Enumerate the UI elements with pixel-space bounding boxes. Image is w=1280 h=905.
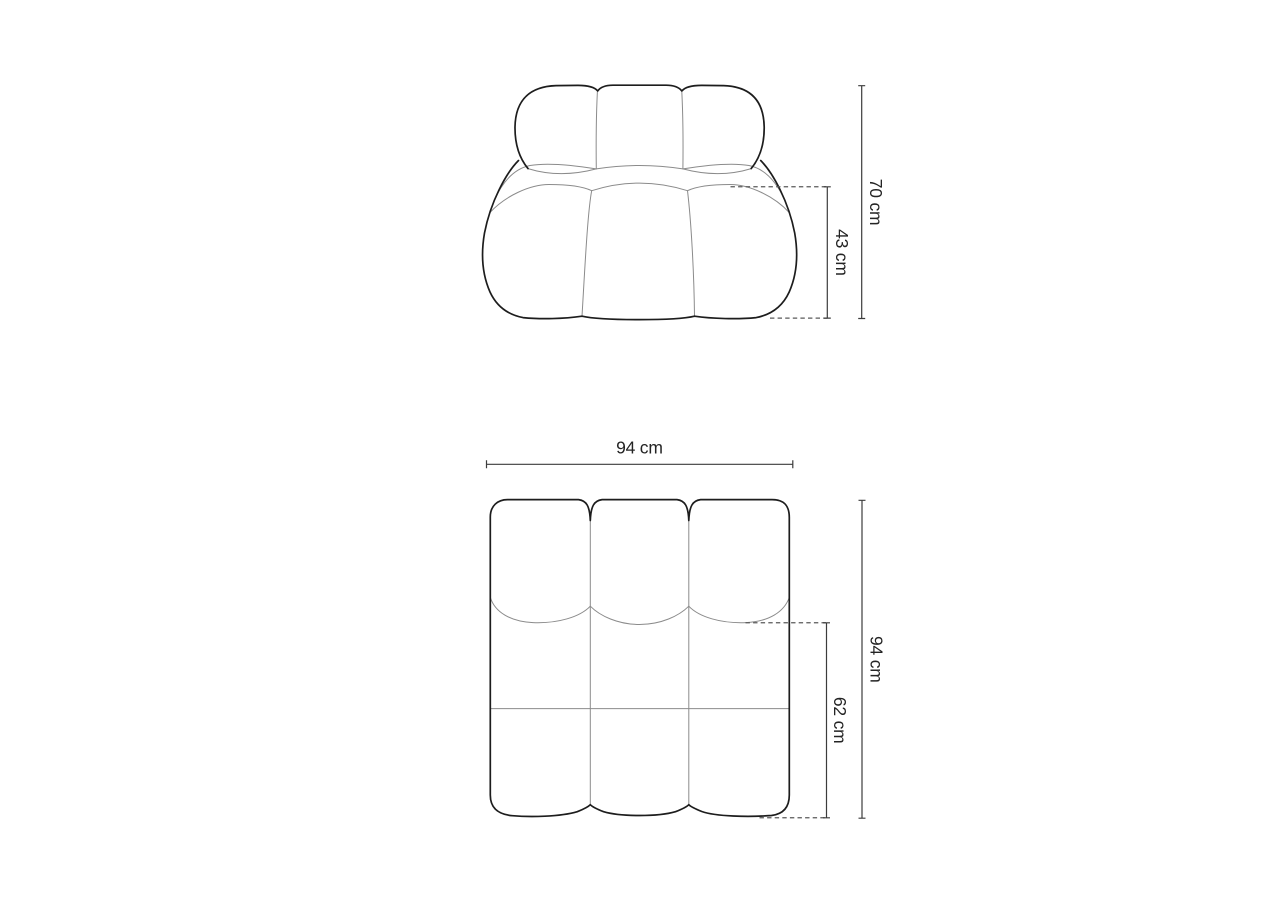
svg-text:43 cm: 43 cm: [832, 229, 852, 276]
svg-text:94 cm: 94 cm: [866, 636, 886, 683]
svg-text:62 cm: 62 cm: [830, 697, 850, 744]
svg-text:70 cm: 70 cm: [866, 179, 886, 226]
svg-text:94 cm: 94 cm: [616, 438, 663, 458]
